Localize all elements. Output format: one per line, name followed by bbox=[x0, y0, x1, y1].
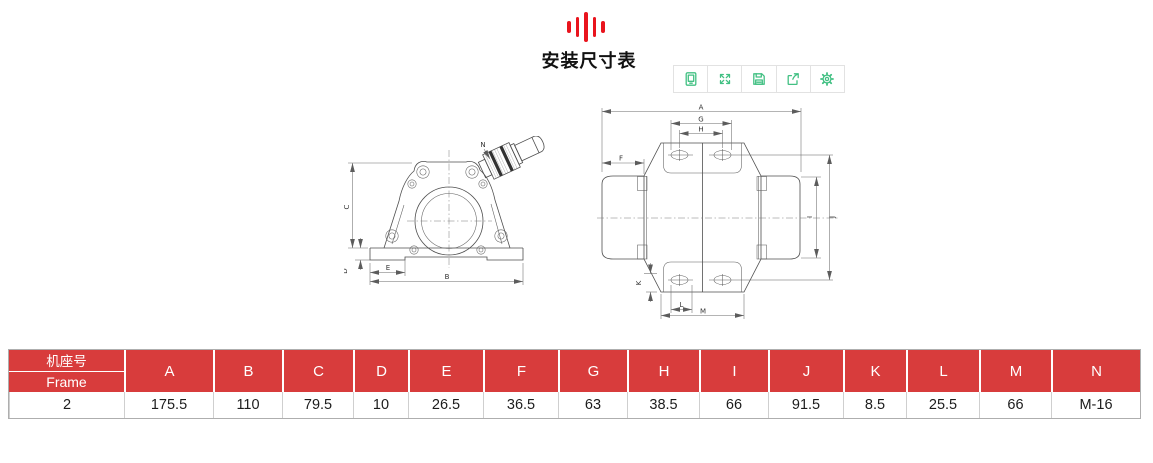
logo-bar bbox=[567, 21, 571, 33]
screen-icon bbox=[683, 71, 699, 87]
dimensions-table: 机座号 Frame A B C D E F G H I J K L M N 2 … bbox=[8, 349, 1141, 419]
dim-label-C: C bbox=[344, 204, 351, 209]
frame-header-en: Frame bbox=[9, 372, 124, 393]
col-header-N: N bbox=[1051, 350, 1140, 392]
col-header-F: F bbox=[483, 350, 558, 392]
table-header-frame: 机座号 Frame bbox=[9, 350, 124, 392]
dim-label-H: H bbox=[698, 126, 703, 134]
save-icon bbox=[751, 71, 767, 87]
dim-label-M: M bbox=[700, 308, 706, 316]
expand-button[interactable] bbox=[708, 66, 742, 92]
col-header-J: J bbox=[768, 350, 843, 392]
cell-B: 110 bbox=[213, 392, 282, 418]
cable-gland bbox=[476, 136, 548, 182]
cell-L: 25.5 bbox=[906, 392, 979, 418]
cell-F: 36.5 bbox=[483, 392, 558, 418]
settings-icon bbox=[819, 71, 835, 87]
col-header-E: E bbox=[408, 350, 483, 392]
dim-label-L: L bbox=[680, 301, 684, 309]
dim-label-I: I bbox=[806, 216, 814, 218]
cell-N: M-16 bbox=[1051, 392, 1140, 418]
cell-K: 8.5 bbox=[843, 392, 906, 418]
dim-label-E: E bbox=[386, 264, 390, 272]
dim-label-K: K bbox=[635, 280, 643, 285]
dim-label-A: A bbox=[699, 104, 704, 112]
cell-E: 26.5 bbox=[408, 392, 483, 418]
col-header-C: C bbox=[282, 350, 353, 392]
vibration-bars-logo bbox=[563, 11, 609, 43]
dim-label-D: D bbox=[344, 268, 349, 273]
cell-D: 10 bbox=[353, 392, 408, 418]
cell-G: 63 bbox=[558, 392, 627, 418]
dim-label-G: G bbox=[698, 116, 703, 124]
col-header-K: K bbox=[843, 350, 906, 392]
logo-bar bbox=[576, 17, 580, 37]
screen-button[interactable] bbox=[674, 66, 708, 92]
motor-front-view-drawing: N C D E B bbox=[344, 136, 550, 290]
cell-J: 91.5 bbox=[768, 392, 843, 418]
share-icon bbox=[785, 71, 801, 87]
cell-H: 38.5 bbox=[627, 392, 699, 418]
col-header-M: M bbox=[979, 350, 1051, 392]
cell-I: 66 bbox=[699, 392, 768, 418]
dim-label-J: J bbox=[829, 216, 837, 219]
col-header-H: H bbox=[627, 350, 699, 392]
settings-button[interactable] bbox=[811, 66, 844, 92]
cell-M: 66 bbox=[979, 392, 1051, 418]
save-button[interactable] bbox=[742, 66, 776, 92]
logo-bar bbox=[601, 21, 605, 33]
col-header-I: I bbox=[699, 350, 768, 392]
cell-C: 79.5 bbox=[282, 392, 353, 418]
cell-frame: 2 bbox=[9, 392, 124, 418]
motor-top-view-drawing: A G H F I J K L M bbox=[595, 103, 840, 322]
col-header-L: L bbox=[906, 350, 979, 392]
cell-A: 175.5 bbox=[124, 392, 213, 418]
col-header-B: B bbox=[213, 350, 282, 392]
logo-bar bbox=[584, 12, 588, 42]
dim-label-F: F bbox=[619, 155, 623, 163]
col-header-G: G bbox=[558, 350, 627, 392]
drawing-toolbar bbox=[673, 65, 845, 93]
page-title: 安装尺寸表 bbox=[542, 47, 637, 73]
dim-label-N: N bbox=[480, 141, 485, 149]
share-button[interactable] bbox=[777, 66, 811, 92]
frame-header-zh: 机座号 bbox=[9, 350, 124, 372]
col-header-D: D bbox=[353, 350, 408, 392]
col-header-A: A bbox=[124, 350, 213, 392]
expand-icon bbox=[717, 71, 733, 87]
dim-label-B: B bbox=[445, 273, 450, 281]
logo-bar bbox=[593, 17, 597, 37]
